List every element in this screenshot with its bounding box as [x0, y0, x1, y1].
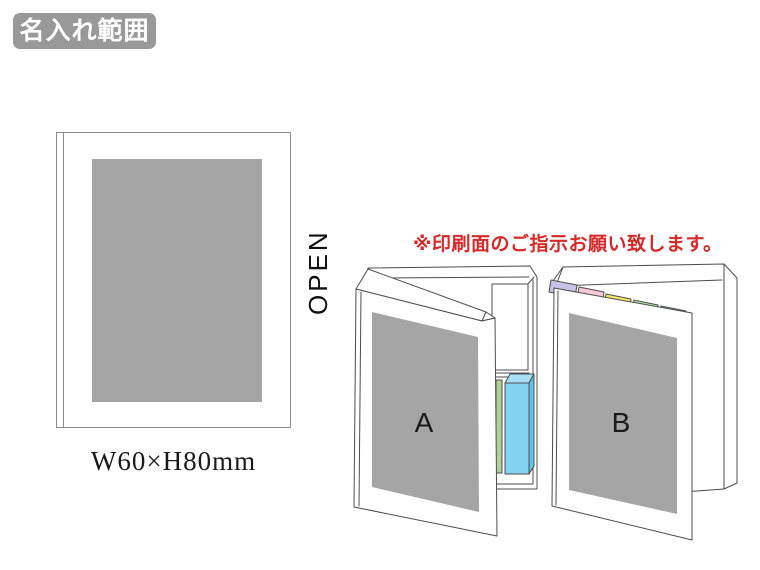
open-direction-label: OPEN	[303, 239, 333, 315]
sticky-pad-blue-side	[529, 374, 534, 474]
print-area-size-label: W60×H80mm	[56, 446, 291, 477]
books-illustration: A B	[340, 250, 760, 570]
book-a-illustration: A	[354, 266, 537, 536]
sticky-pad-green	[496, 380, 502, 473]
book-a-label: A	[415, 407, 434, 438]
spine-fold-line	[63, 133, 64, 427]
book-b-label: B	[612, 407, 631, 438]
book-b-illustration: B	[549, 264, 737, 540]
cover-front-diagram	[56, 132, 291, 428]
imprint-area-badge: 名入れ範囲	[13, 13, 156, 49]
sticky-pad-blue	[505, 383, 529, 474]
sticky-pad-white	[492, 284, 528, 370]
print-area-rect	[92, 159, 262, 402]
